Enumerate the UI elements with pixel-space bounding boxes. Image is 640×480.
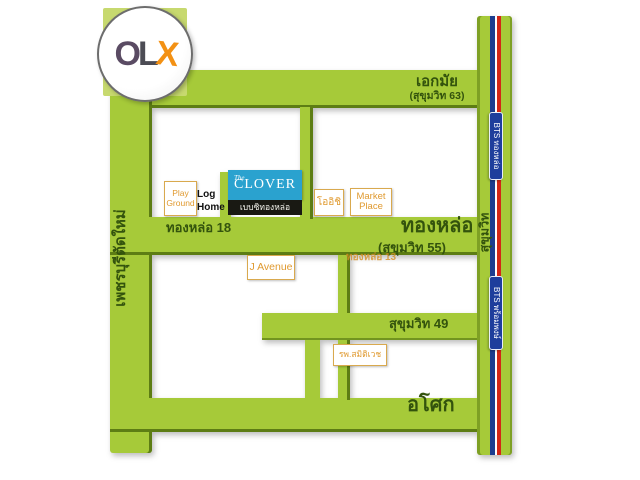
poi-log-home-line2: Home bbox=[197, 201, 225, 214]
bts-line-red-stripe bbox=[497, 16, 501, 455]
poi-log-home-line1: Log bbox=[197, 188, 225, 201]
label-ekkamai: เอกมัย bbox=[392, 74, 482, 90]
road-network bbox=[0, 0, 640, 480]
olx-letter-x: X bbox=[154, 34, 178, 75]
label-phetchaburi: เพชรบุรีตัดใหม่ bbox=[113, 176, 131, 340]
poi-oishi-label: โออิชิ bbox=[315, 197, 343, 208]
map-canvas: เอกมัย (สุขุมวิท 63) ทองหล่อ (สุขุมวิท 5… bbox=[0, 0, 640, 480]
label-thonglor: ทองหล่อ bbox=[401, 216, 473, 237]
poi-play-ground-line2: Ground bbox=[165, 199, 196, 208]
clover-name: CLOVER bbox=[228, 177, 302, 193]
road-samitivej-soi bbox=[305, 340, 320, 399]
label-sukhumvit49: สุขุมวิท 49 bbox=[389, 317, 448, 331]
bts-phrompong-sign: BTS พร้อมพงษ์ bbox=[489, 276, 503, 350]
poi-oishi: โออิชิ bbox=[314, 189, 344, 216]
poi-play-ground: Play Ground bbox=[164, 181, 197, 216]
olx-wordmark: OLX bbox=[115, 35, 176, 74]
olx-logo: OLX bbox=[97, 6, 193, 102]
poi-samitivej-label: รพ.สมิติเวช bbox=[334, 350, 386, 359]
poi-samitivej-hospital: รพ.สมิติเวช bbox=[333, 344, 387, 366]
olx-letter-l: L bbox=[138, 35, 156, 73]
poi-market-line2: Place bbox=[351, 202, 391, 212]
label-ekkamai-sub: (สุขุมวิท 63) bbox=[392, 91, 482, 102]
bts-thonglor-sign: BTS ทองหล่อ bbox=[489, 112, 503, 180]
clover-thai-bar: เบบซิทองหล่อ bbox=[228, 200, 302, 215]
label-thonglor18: ทองหล่อ 18 bbox=[166, 221, 231, 235]
poi-j-avenue-label: J Avenue bbox=[248, 262, 294, 274]
poi-market-place: Market Place bbox=[350, 188, 392, 216]
poi-log-home: Log Home bbox=[197, 188, 225, 214]
olx-letter-o: O bbox=[115, 35, 138, 73]
label-asok: อโศก bbox=[407, 395, 455, 416]
label-thonglor13: ทองหล่อ 13 bbox=[346, 253, 396, 264]
label-sukhumvit: สุขุมวิท bbox=[479, 202, 494, 264]
clover-sign: The CLOVER bbox=[228, 170, 302, 200]
poi-j-avenue: J Avenue bbox=[247, 255, 295, 280]
